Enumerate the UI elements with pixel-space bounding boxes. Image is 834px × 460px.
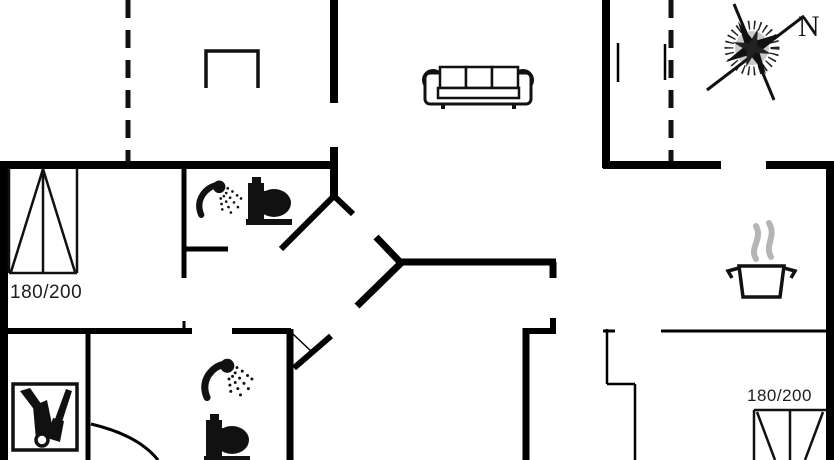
compass-north-label: N xyxy=(798,10,820,44)
shower-icon xyxy=(199,181,242,215)
double-bed-icon xyxy=(9,168,77,273)
toilet-icon xyxy=(246,177,292,225)
floor-plan-drawing xyxy=(0,0,834,460)
toilet-icon xyxy=(204,414,250,460)
compass-rose-icon xyxy=(707,4,804,100)
floor-plan: 180/200 180/200 N xyxy=(0,0,834,460)
cleaning-closet-icon xyxy=(13,384,77,450)
wardrobe-table-icon xyxy=(206,51,258,88)
double-bed-icon xyxy=(754,410,826,460)
bed-size-label: 180/200 xyxy=(10,282,82,304)
shower-icon xyxy=(205,359,254,398)
cooking-pot-icon xyxy=(728,223,795,297)
dashed-partition-lines xyxy=(128,0,671,162)
door-swing-arc-icon xyxy=(91,424,158,460)
walls xyxy=(0,0,834,460)
sofa-icon xyxy=(424,67,533,109)
bed-size-label: 180/200 xyxy=(747,386,812,406)
